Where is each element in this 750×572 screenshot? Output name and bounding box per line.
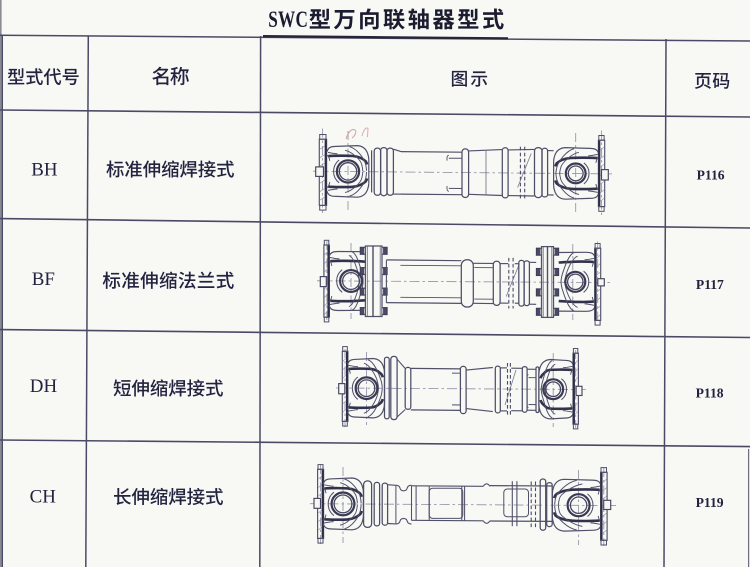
svg-text:P117: P117	[696, 277, 724, 292]
svg-text:DH: DH	[30, 376, 57, 397]
svg-text:P116: P116	[697, 168, 725, 183]
svg-text:P119: P119	[696, 495, 724, 510]
svg-text:SWC: SWC	[268, 7, 308, 32]
svg-text:CH: CH	[30, 486, 56, 507]
svg-text:BF: BF	[32, 269, 55, 290]
svg-text:BH: BH	[31, 159, 57, 180]
svg-text:P118: P118	[696, 386, 724, 401]
